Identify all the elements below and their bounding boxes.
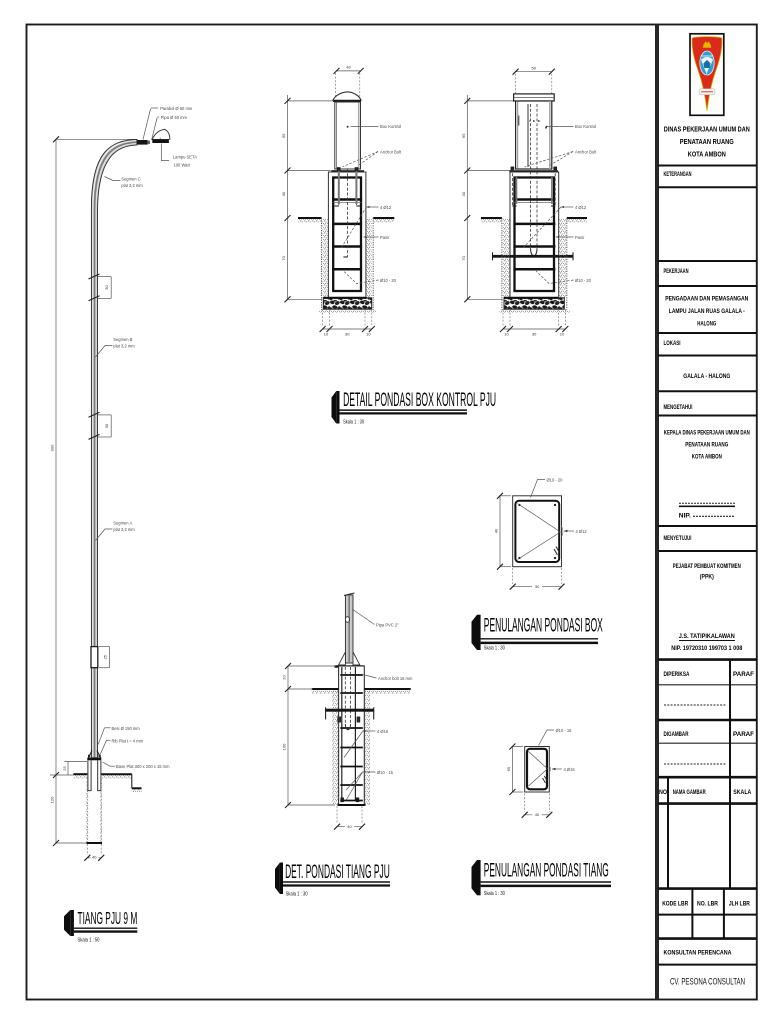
svg-text:LOKASI: LOKASI: [664, 340, 681, 347]
svg-text:40: 40: [494, 528, 499, 533]
svg-text:HALONG: HALONG: [697, 321, 716, 328]
svg-text:30: 30: [535, 584, 540, 589]
svg-text:DIPERIKSA: DIPERIKSA: [664, 671, 690, 678]
svg-text:Pasir: Pasir: [380, 235, 390, 240]
svg-text:GALALA - HALONG: GALALA - HALONG: [683, 373, 730, 380]
svg-text:Skala 1 : 50: Skala 1 : 50: [78, 937, 100, 943]
svg-text:Besi Ø 150 mm: Besi Ø 150 mm: [112, 726, 141, 731]
svg-text:10: 10: [324, 332, 329, 337]
svg-text:40: 40: [535, 812, 540, 817]
svg-text:PENULANGAN PONDASI TIANG: PENULANGAN PONDASI TIANG: [484, 861, 609, 882]
svg-text:100 Watt: 100 Watt: [174, 162, 191, 167]
svg-text:plat 3,2 mm: plat 3,2 mm: [113, 527, 135, 532]
svg-text:70: 70: [281, 255, 286, 260]
svg-text:30: 30: [104, 423, 109, 428]
svg-text:MENYETUJUI: MENYETUJUI: [664, 535, 692, 542]
svg-text:Anchor bolt 16 mm: Anchor bolt 16 mm: [378, 676, 413, 681]
svg-text:50: 50: [531, 65, 536, 70]
svg-text:plat 3,2 mm: plat 3,2 mm: [121, 183, 143, 188]
svg-text:20: 20: [281, 675, 286, 680]
svg-text:KOTA AMBON: KOTA AMBON: [692, 455, 722, 461]
svg-text:Ø10 - 20: Ø10 - 20: [380, 278, 397, 283]
svg-text:10: 10: [366, 332, 371, 337]
svg-text:Skala 1 : 30: Skala 1 : 30: [286, 892, 308, 898]
svg-text:120: 120: [49, 796, 54, 803]
svg-text:PENGADAAN DAN PEMASANGAN: PENGADAAN DAN PEMASANGAN: [665, 296, 748, 303]
svg-text:LAMPU JALAN RUAS GALALA -: LAMPU JALAN RUAS GALALA -: [669, 308, 745, 315]
svg-text:Parabol Ø 60 mm: Parabol Ø 60 mm: [160, 106, 193, 111]
svg-text:Skala 1 : 30: Skala 1 : 30: [484, 646, 505, 652]
svg-text:KONSULTAN PERENCANA: KONSULTAN PERENCANA: [664, 950, 732, 957]
svg-text:MENGETAHUI: MENGETAHUI: [664, 404, 693, 411]
svg-text:TIANG PJU 9 M: TIANG PJU 9 M: [78, 908, 138, 928]
svg-text:4 Ø12: 4 Ø12: [575, 205, 587, 210]
svg-text:Pasir: Pasir: [575, 235, 585, 240]
svg-text:30: 30: [345, 332, 350, 337]
svg-text:PEJABAT PEMBUAT KOMITMEN: PEJABAT PEMBUAT KOMITMEN: [673, 563, 741, 570]
svg-text:J.S. TATIPIKALAWAN: J.S. TATIPIKALAWAN: [679, 633, 735, 640]
svg-text:4 Ø16: 4 Ø16: [377, 729, 389, 734]
svg-text:900: 900: [49, 444, 54, 451]
svg-text:Anchor Bolt: Anchor Bolt: [575, 150, 597, 155]
svg-text:NIP.: NIP.: [679, 513, 691, 520]
svg-text:JLH LBR: JLH LBR: [729, 901, 750, 908]
svg-text:Pipa Ø 50 mm: Pipa Ø 50 mm: [161, 115, 188, 120]
svg-text:Ø10 - 20: Ø10 - 20: [547, 477, 564, 482]
svg-text:100: 100: [281, 743, 286, 750]
svg-text:40: 40: [347, 824, 352, 829]
svg-text:KOTA AMBON: KOTA AMBON: [688, 150, 726, 159]
svg-text:KEPALA DINAS PEKERJAAN UMUM DA: KEPALA DINAS PEKERJAAN UMUM DAN: [664, 431, 750, 437]
svg-text:Segmen B: Segmen B: [113, 337, 132, 342]
svg-text:Skala 1 : 30: Skala 1 : 30: [343, 419, 364, 425]
svg-text:KETERANGAN: KETERANGAN: [664, 171, 692, 178]
svg-text:Rib Plat t = 4 mm: Rib Plat t = 4 mm: [112, 738, 144, 743]
svg-text:4 Ø16: 4 Ø16: [564, 767, 576, 772]
svg-text:40: 40: [346, 65, 351, 70]
svg-text:PENULANGAN PONDASI BOX: PENULANGAN PONDASI BOX: [484, 615, 603, 636]
svg-text:Lampu SETA: Lampu SETA: [173, 155, 197, 160]
svg-text:DETAIL PONDASI BOX KONTROL PJU: DETAIL PONDASI BOX KONTROL PJU: [343, 390, 496, 411]
svg-text:Box Kontrol: Box Kontrol: [575, 124, 596, 129]
svg-text:30: 30: [532, 332, 537, 337]
svg-text:30: 30: [104, 285, 109, 290]
svg-text:PARAF: PARAF: [733, 671, 754, 678]
svg-text:SKALA: SKALA: [733, 789, 751, 796]
svg-text:40: 40: [281, 191, 286, 196]
svg-text:PEKERJAAN: PEKERJAAN: [664, 268, 689, 275]
svg-text:Skala 1 : 30: Skala 1 : 30: [484, 891, 505, 897]
svg-text:NO. LBR: NO. LBR: [697, 901, 718, 908]
svg-text:NAMA GAMBAR: NAMA GAMBAR: [673, 789, 706, 796]
svg-text:PARAF: PARAF: [733, 731, 754, 738]
svg-text:25: 25: [62, 766, 67, 771]
svg-text:Box Kontrol: Box Kontrol: [380, 124, 401, 129]
svg-text:4 Ø12: 4 Ø12: [380, 205, 392, 210]
svg-text:65: 65: [461, 133, 466, 138]
svg-text:PENATAAN RUANG: PENATAAN RUANG: [685, 443, 728, 449]
svg-text:Pipa PVC 2": Pipa PVC 2": [376, 622, 399, 627]
svg-text:DET. PONDASI TIANG PJU: DET. PONDASI TIANG PJU: [285, 862, 390, 883]
svg-text:Ø10 - 20: Ø10 - 20: [575, 278, 592, 283]
svg-text:4 Ø12: 4 Ø12: [576, 529, 588, 534]
svg-text:65: 65: [281, 133, 286, 138]
svg-text:KODE LBR: KODE LBR: [662, 901, 688, 908]
svg-text:25: 25: [103, 654, 108, 659]
svg-text:70: 70: [461, 255, 466, 260]
svg-text:(PPK): (PPK): [700, 574, 714, 581]
svg-text:60: 60: [506, 766, 511, 771]
svg-text:Segmen A: Segmen A: [113, 520, 132, 525]
svg-text:Ø10 - 15: Ø10 - 15: [377, 770, 394, 775]
svg-text:DINAS PEKERJAAN UMUM DAN: DINAS PEKERJAAN UMUM DAN: [664, 125, 750, 134]
svg-text:CV. PESONA CONSULTAN: CV. PESONA CONSULTAN: [670, 976, 745, 987]
svg-text:40: 40: [461, 191, 466, 196]
svg-text:DIGAMBAR: DIGAMBAR: [664, 731, 689, 738]
svg-text:10: 10: [560, 332, 565, 337]
svg-text:40: 40: [92, 854, 97, 859]
svg-text:PENATAAN RUANG: PENATAAN RUANG: [680, 137, 734, 146]
svg-text:Base Plat 300 x 200 x 15 mm: Base Plat 300 x 200 x 15 mm: [116, 764, 170, 769]
svg-text:Segmen C: Segmen C: [121, 177, 140, 182]
svg-text:NO: NO: [659, 789, 667, 796]
svg-text:plat 3,2 mm: plat 3,2 mm: [113, 343, 135, 348]
svg-text:NIP. 19720310 199703 1 008: NIP. 19720310 199703 1 008: [671, 645, 742, 652]
svg-text:Ø10 - 15: Ø10 - 15: [556, 728, 573, 733]
svg-text:10: 10: [504, 332, 509, 337]
svg-text:Anchor Bolt: Anchor Bolt: [380, 150, 402, 155]
